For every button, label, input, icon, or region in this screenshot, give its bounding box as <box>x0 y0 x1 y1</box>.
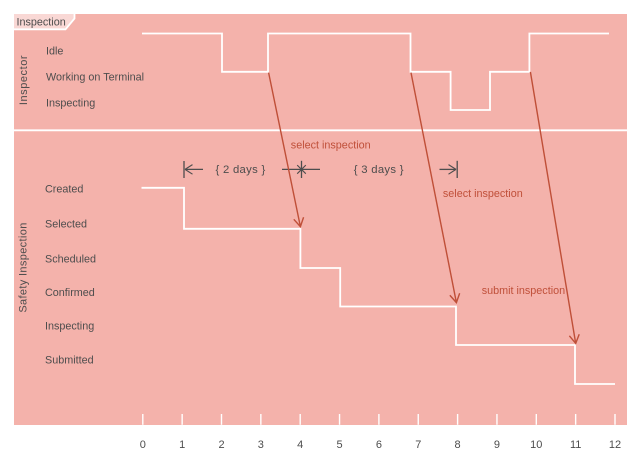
svg-text:select inspection: select inspection <box>291 140 371 152</box>
svg-text:3: 3 <box>258 439 264 451</box>
svg-text:2: 2 <box>218 439 224 451</box>
svg-text:0: 0 <box>140 439 146 451</box>
svg-text:11: 11 <box>570 439 581 451</box>
svg-text:4: 4 <box>297 439 303 451</box>
svg-text:submit inspection: submit inspection <box>482 285 565 297</box>
svg-text:Scheduled: Scheduled <box>45 254 96 266</box>
svg-text:Inspector: Inspector <box>18 55 30 105</box>
svg-text:Working on Terminal: Working on Terminal <box>46 72 144 84</box>
svg-text:1: 1 <box>179 439 185 451</box>
svg-text:Safety Inspection: Safety Inspection <box>18 222 30 312</box>
svg-text:12: 12 <box>609 439 621 451</box>
svg-text:Inspecting: Inspecting <box>46 98 95 110</box>
svg-text:7: 7 <box>415 439 421 451</box>
svg-text:Selected: Selected <box>45 219 87 231</box>
svg-text:9: 9 <box>494 439 500 451</box>
svg-text:6: 6 <box>376 439 382 451</box>
svg-text:Inspection: Inspection <box>17 17 66 29</box>
svg-text:Idle: Idle <box>46 46 63 58</box>
svg-text:select inspection: select inspection <box>443 188 523 200</box>
svg-text:5: 5 <box>336 439 342 451</box>
svg-text:{ 2 days }: { 2 days } <box>215 164 265 176</box>
svg-text:8: 8 <box>455 439 461 451</box>
svg-text:Submitted: Submitted <box>45 354 94 366</box>
svg-text:Created: Created <box>45 184 83 196</box>
svg-text:Inspecting: Inspecting <box>45 320 94 332</box>
svg-text:{ 3 days }: { 3 days } <box>354 164 404 176</box>
svg-text:10: 10 <box>530 439 542 451</box>
svg-text:Confirmed: Confirmed <box>45 287 95 299</box>
